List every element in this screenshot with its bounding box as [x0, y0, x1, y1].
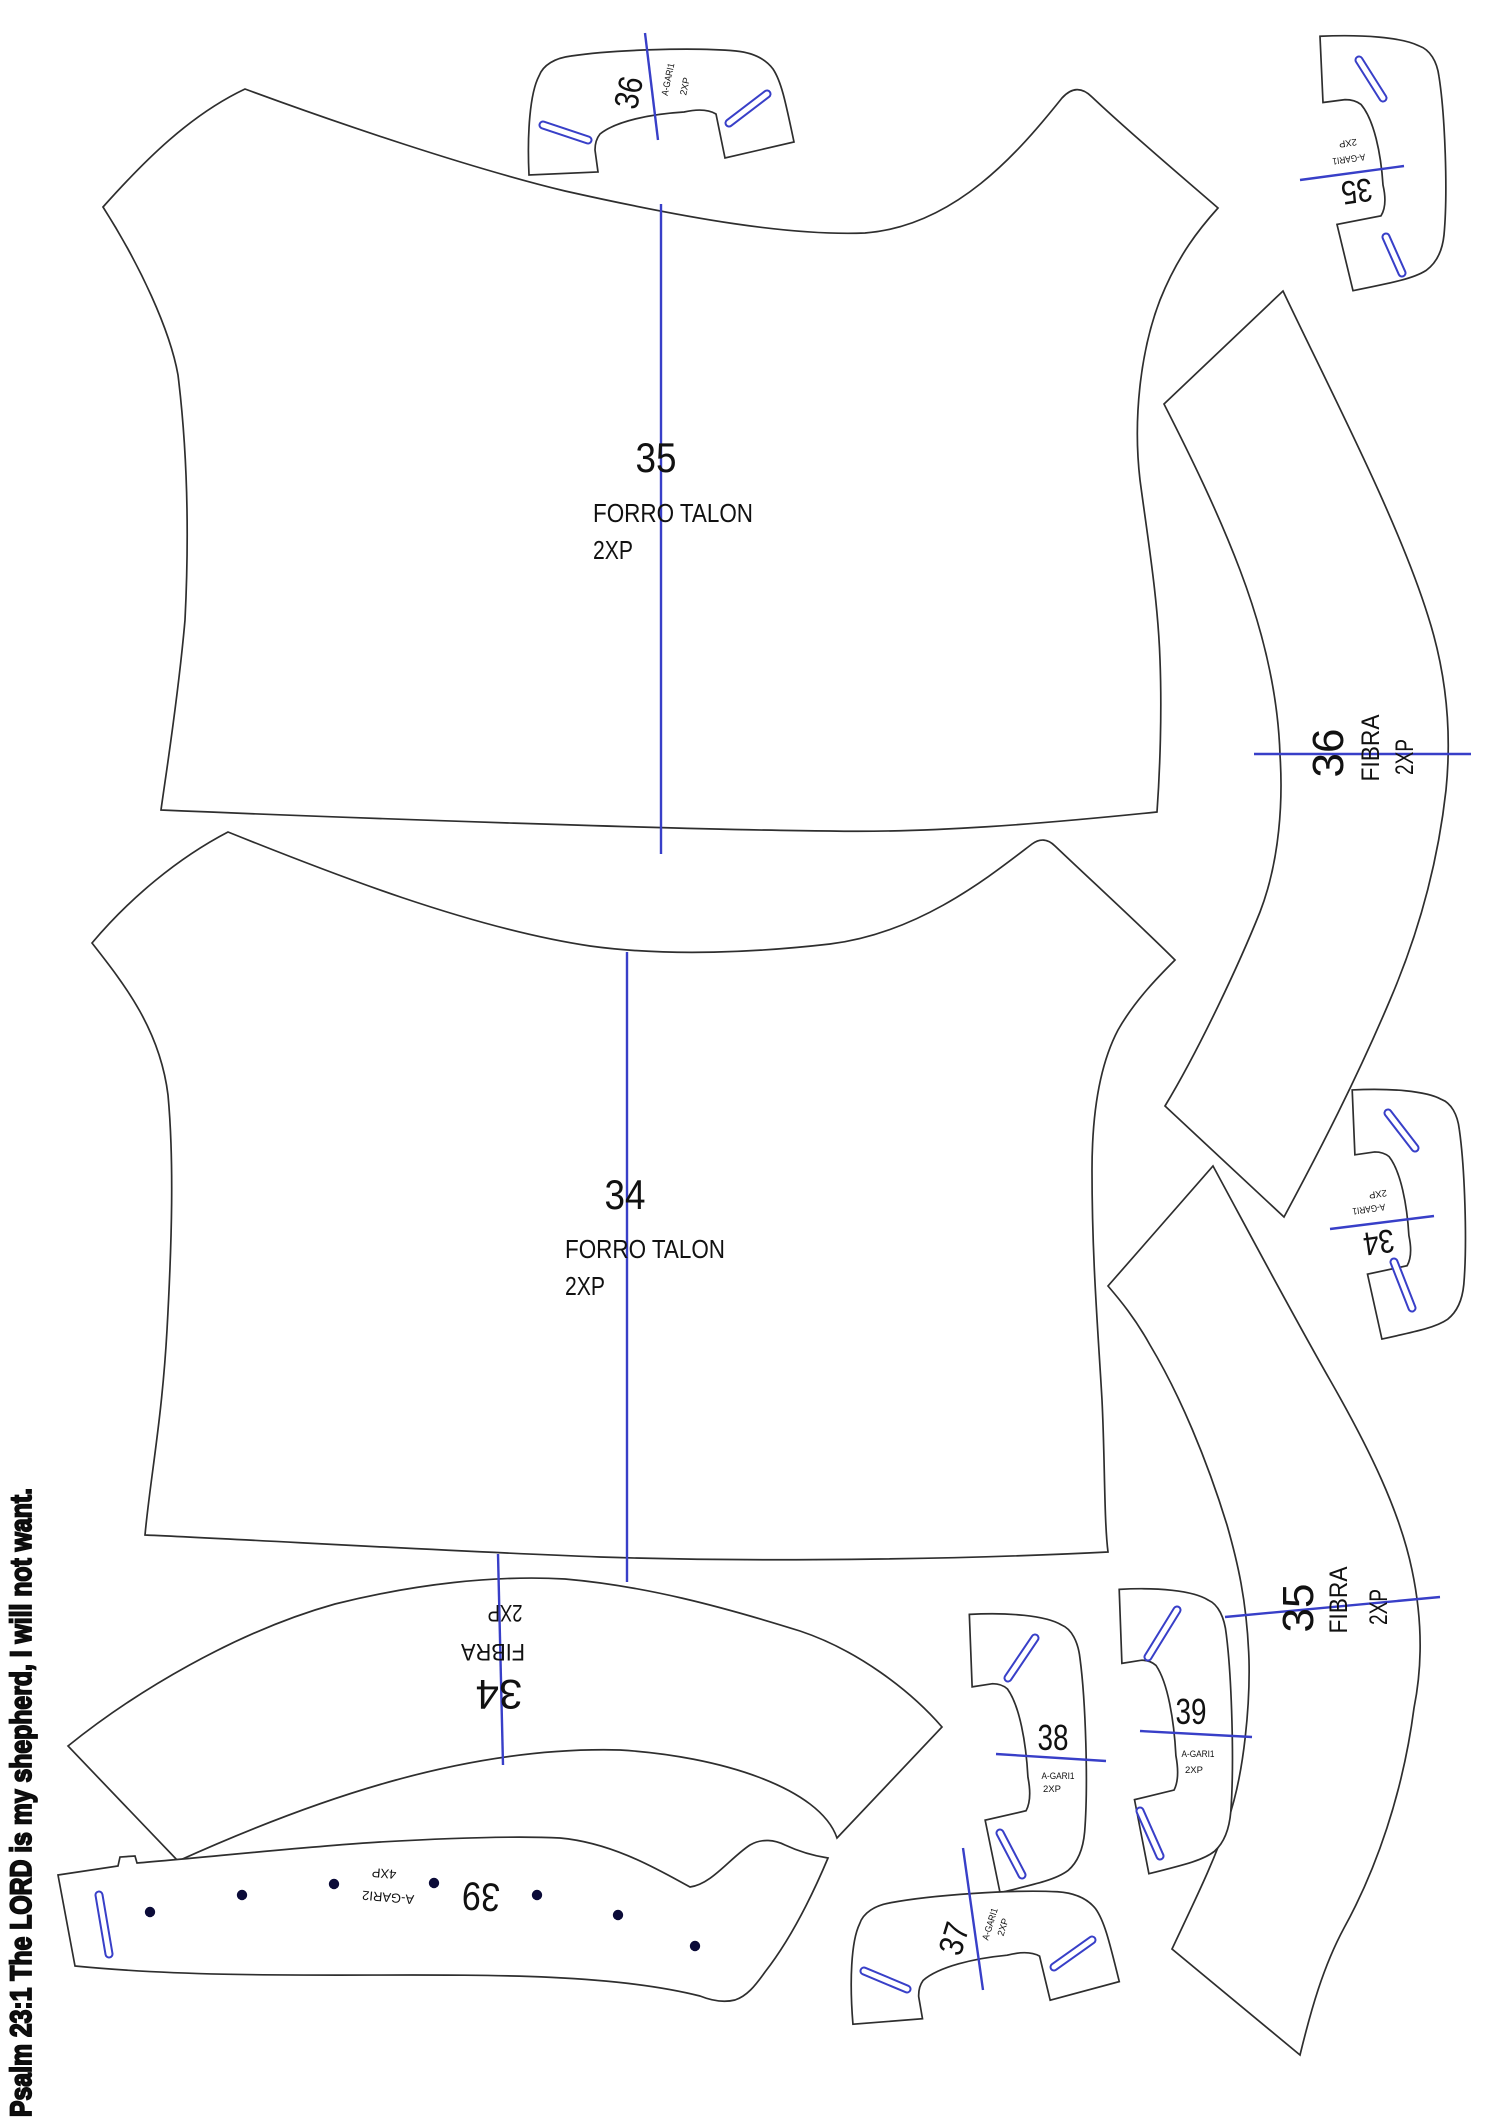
svg-text:FORRO TALON: FORRO TALON — [593, 498, 753, 528]
svg-text:38: 38 — [1038, 1717, 1069, 1758]
svg-text:34: 34 — [605, 1171, 646, 1218]
svg-text:36: 36 — [1304, 729, 1353, 778]
svg-text:2XP: 2XP — [1391, 739, 1419, 775]
svg-text:A-GARI1: A-GARI1 — [1182, 1749, 1215, 1760]
svg-text:2XP: 2XP — [1365, 1589, 1393, 1625]
svg-text:Psalm 23:1 The LORD is my shep: Psalm 23:1 The LORD is my shepherd, I wi… — [4, 1488, 38, 2117]
svg-text:FIBRA: FIBRA — [1325, 1566, 1353, 1633]
svg-text:FIBRA: FIBRA — [461, 1638, 525, 1665]
svg-text:4XP: 4XP — [371, 1865, 397, 1882]
svg-text:2XP: 2XP — [1185, 1765, 1203, 1776]
svg-text:2XP: 2XP — [593, 535, 633, 565]
svg-text:39: 39 — [1176, 1691, 1207, 1732]
svg-text:34: 34 — [476, 1671, 523, 1718]
svg-text:FIBRA: FIBRA — [1357, 714, 1385, 781]
svg-text:35: 35 — [1274, 1584, 1323, 1633]
svg-text:39: 39 — [461, 1873, 501, 1919]
svg-text:A-GARI1: A-GARI1 — [1042, 1771, 1075, 1782]
svg-text:2XP: 2XP — [565, 1271, 605, 1301]
svg-text:35: 35 — [1339, 171, 1375, 212]
svg-text:34: 34 — [1361, 1222, 1397, 1263]
svg-text:2XP: 2XP — [1043, 1784, 1061, 1795]
svg-text:2XP: 2XP — [488, 1599, 523, 1626]
svg-text:35: 35 — [636, 434, 677, 481]
svg-text:FORRO TALON: FORRO TALON — [565, 1234, 725, 1264]
